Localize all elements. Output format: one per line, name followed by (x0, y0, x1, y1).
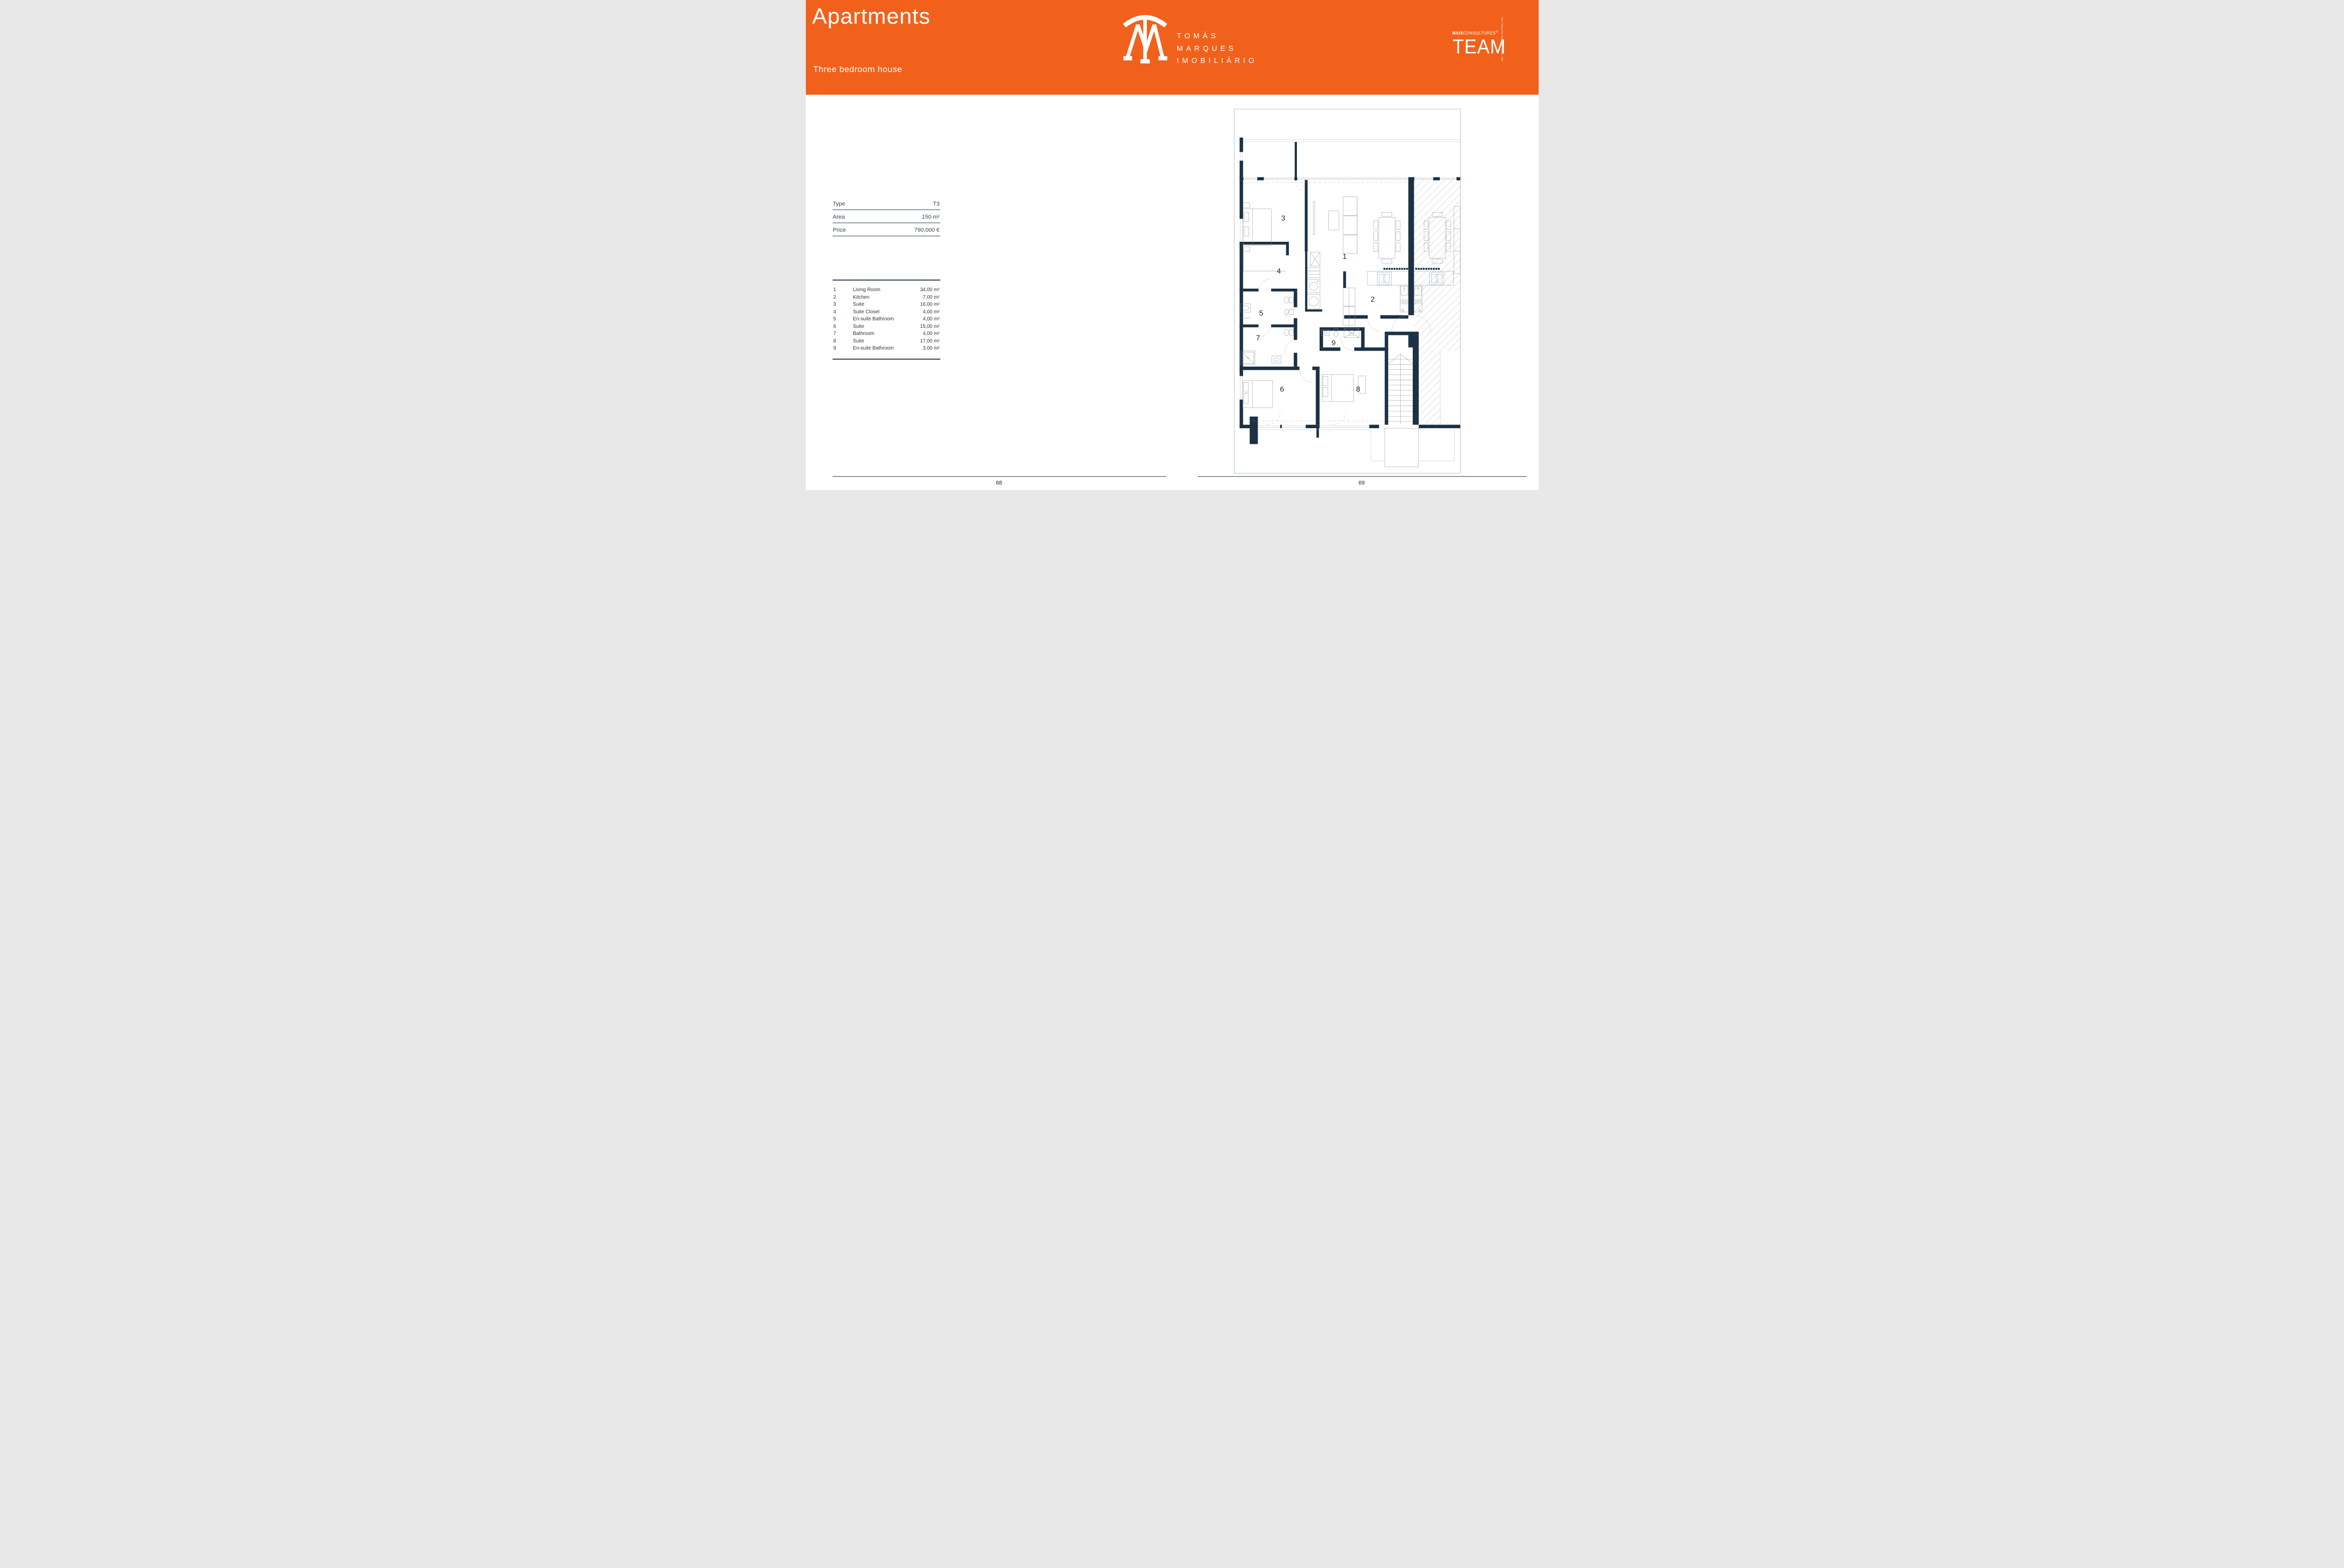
room-area: 15,00 m² (911, 323, 940, 331)
balcony-rail (1239, 140, 1460, 142)
room-name: En-suite Bathroom (853, 345, 911, 353)
brand-line-2: MARQUES (1177, 43, 1258, 55)
room-area: 7,00 m² (911, 294, 940, 302)
room-row: 9 En-suite Bathroom 3,00 m² (833, 345, 940, 353)
room-row: 6 Suite 15,00 m² (833, 323, 940, 331)
label-bath-5: 5 (1259, 309, 1263, 317)
summary-table: Type T3 Area 150 m² Price 790,000 € (833, 197, 940, 236)
summary-row-price: Price 790,000 € (833, 223, 940, 236)
page-subtitle: Three bedroom house (813, 64, 903, 75)
hatched-neighbour-area (1414, 180, 1460, 425)
room-area: 34,00 m² (911, 287, 940, 294)
label-bath-9: 9 (1331, 339, 1335, 348)
summary-value: 150 m² (922, 214, 939, 220)
room-area: 3,00 m² (911, 345, 940, 353)
room-name: Suite (853, 301, 911, 309)
terrace-outline (1259, 428, 1455, 461)
dining-table (1373, 212, 1400, 263)
tomas-marques-monogram-icon (1119, 7, 1171, 65)
page-number-left: 68 (989, 480, 1009, 486)
room-number: 2 (833, 294, 853, 302)
room-number: 4 (833, 309, 853, 316)
room-row: 4 Suite Closet 4,00 m² (833, 309, 940, 316)
registered-mark: ® (1496, 30, 1498, 34)
summary-label: Price (833, 227, 846, 233)
brochure-page: Apartments Three bedroom house TOMÁS MAR… (806, 0, 1539, 490)
room-row: 3 Suite 16,00 m² (833, 301, 940, 309)
room-number: 3 (833, 301, 853, 309)
footer-rule-left (833, 476, 1166, 477)
room-name: Suite (853, 323, 911, 331)
room-area: 4,00 m² (911, 309, 940, 316)
brand-name: TOMÁS MARQUES IMOBILIÁRIO (1177, 30, 1258, 67)
dashed-lines (1243, 183, 1408, 421)
room-row: 5 En-suite Bathroom 4,00 m² (833, 316, 940, 323)
room-row: 2 Kitchen 7,00 m² (833, 294, 940, 302)
stair-shaft-lower (1385, 428, 1419, 467)
living-room-furniture (1313, 197, 1357, 254)
room-number: 9 (833, 345, 853, 353)
summary-value: 790,000 € (914, 227, 939, 233)
room-row: 1 Living Room 34,00 m² (833, 287, 940, 294)
room-name: Suite Closet (853, 309, 911, 316)
room-area: 17,00 m² (911, 338, 940, 346)
label-closet-4: 4 (1277, 267, 1281, 276)
bathroom-5-fixtures (1240, 297, 1293, 318)
summary-row-area: Area 150 m² (833, 210, 940, 223)
brand-line-1: TOMÁS (1177, 30, 1258, 43)
consultores-label: CONSULTORES (1463, 31, 1496, 36)
room-number: 6 (833, 323, 853, 331)
room-name: Living Room (853, 287, 911, 294)
summary-value: T3 (933, 201, 939, 207)
room-row: 7 Bathroom 4,00 m² (833, 330, 940, 338)
room-number: 1 (833, 287, 853, 294)
team-side-text: AMI: 23990 SEED THE FUTURE, LDA. (1501, 39, 1503, 61)
bed-suite-6 (1243, 381, 1272, 408)
page-title: Apartments (812, 4, 931, 29)
room-number: 5 (833, 316, 853, 323)
utility-laundry (1307, 252, 1320, 309)
room-schedule: 1 Living Room 34,00 m² 2 Kitchen 7,00 m²… (833, 280, 940, 360)
header-band: Apartments Three bedroom house TOMÁS MAR… (806, 0, 1539, 95)
label-suite-6: 6 (1280, 386, 1284, 394)
team-wordmark: TEAM (1453, 37, 1508, 57)
summary-row-type: Type T3 (833, 197, 940, 210)
room-area: 4,00 m² (911, 330, 940, 338)
room-name: En-suite Bathroom (853, 316, 911, 323)
consultores-team-logo: MAISCONSULTORES® TEAM AMI: 23990 SEED TH… (1453, 30, 1513, 57)
room-row: 8 Suite 17,00 m² (833, 338, 940, 346)
room-name: Kitchen (853, 294, 911, 302)
floor-plan: 1 2 3 4 5 6 7 8 9 (1234, 109, 1461, 473)
page-number-right: 69 (1352, 480, 1372, 486)
room-name: Bathroom (853, 330, 911, 338)
floor-plan-drawing: 1 2 3 4 5 6 7 8 9 (1234, 109, 1461, 473)
room-number: 8 (833, 338, 853, 346)
room-name: Suite (853, 338, 911, 346)
room-area: 16,00 m² (911, 301, 940, 309)
room-number: 7 (833, 330, 853, 338)
label-suite-8: 8 (1356, 386, 1360, 394)
stairs (1388, 354, 1413, 424)
label-bath-7: 7 (1256, 334, 1260, 342)
label-living-room: 1 (1342, 253, 1346, 261)
summary-label: Type (833, 201, 846, 207)
label-suite-3: 3 (1281, 215, 1285, 223)
room-area: 4,00 m² (911, 316, 940, 323)
label-kitchen: 2 (1370, 296, 1374, 304)
brand-line-3: IMOBILIÁRIO (1177, 55, 1258, 67)
summary-label: Area (833, 214, 845, 220)
mais-label: MAIS (1453, 31, 1464, 36)
footer-rule-right (1198, 476, 1527, 477)
window-band-top (1243, 178, 1460, 180)
